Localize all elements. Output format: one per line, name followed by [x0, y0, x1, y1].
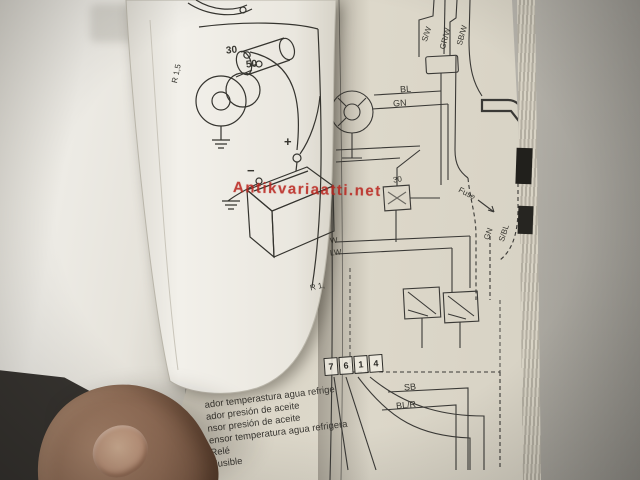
terminal-30-label: 30 [225, 44, 237, 56]
battery-plus-label: + [284, 134, 292, 149]
battery-minus-label: − [247, 163, 255, 178]
terminal-50-label: 50 [245, 58, 257, 70]
photo-of-wiring-manual: S/W GR/W SB/W BL GN 30 Fuse GN S/BL W LW… [0, 0, 640, 480]
